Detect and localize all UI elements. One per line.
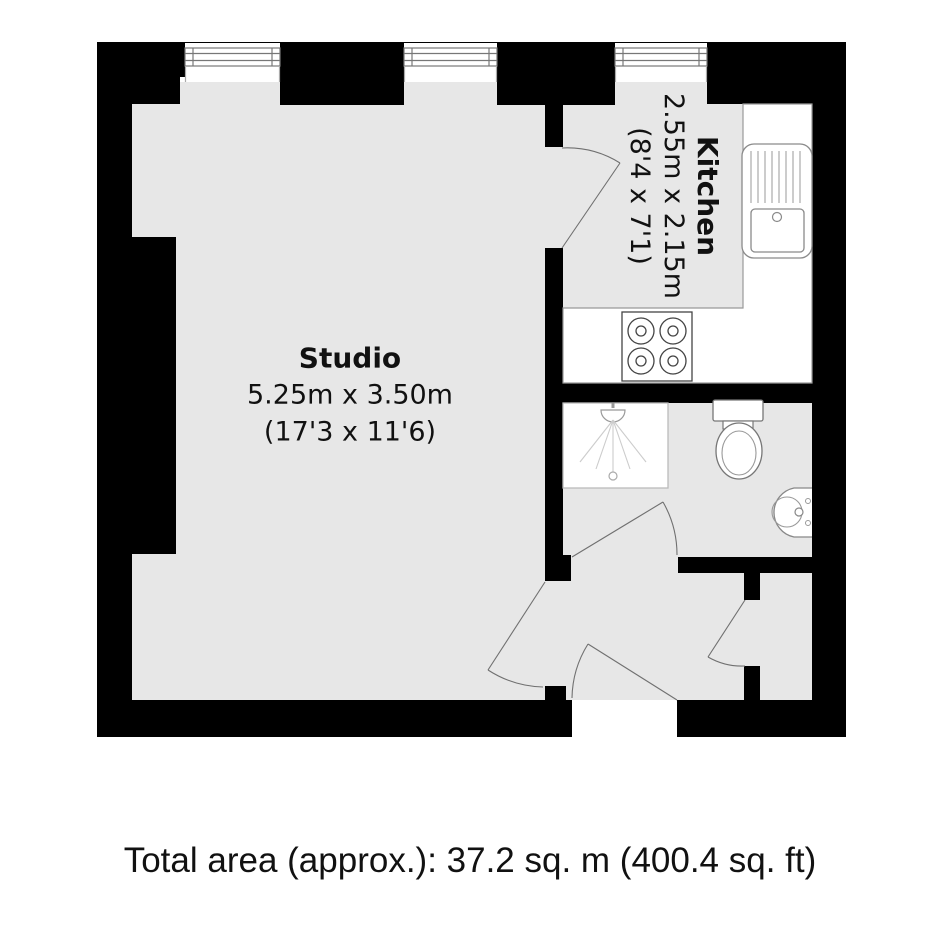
entrance-door-icon <box>572 644 677 700</box>
shower-icon <box>563 403 668 488</box>
studio-dims-metric: 5.25m x 3.50m <box>247 377 453 414</box>
studio-room-label: Studio 5.25m x 3.50m (17'3 x 11'6) <box>247 340 453 451</box>
hob-icon <box>622 312 692 381</box>
bathroom-door-icon <box>572 502 677 557</box>
toilet-icon <box>713 400 763 479</box>
kitchen-room-name: Kitchen <box>690 93 724 299</box>
kitchen-door-icon <box>562 148 620 248</box>
fixtures-layer <box>0 0 940 940</box>
window-icon <box>404 48 497 82</box>
window-icon <box>615 48 707 82</box>
window-icon <box>185 48 280 82</box>
closet-door-icon <box>708 600 745 666</box>
kitchen-dims-imperial: (8'4 x 7'1) <box>622 93 656 299</box>
studio-hall-door-icon <box>488 582 545 687</box>
basin-icon <box>772 488 812 537</box>
total-area-caption: Total area (approx.): 37.2 sq. m (400.4 … <box>124 841 817 881</box>
studio-room-name: Studio <box>247 340 453 377</box>
kitchen-room-label: Kitchen 2.55m x 2.15m (8'4 x 7'1) <box>622 93 724 299</box>
kitchen-sink-icon <box>742 144 812 258</box>
floorplan: Studio 5.25m x 3.50m (17'3 x 11'6) Kitch… <box>0 0 940 940</box>
studio-dims-imperial: (17'3 x 11'6) <box>247 414 453 451</box>
kitchen-dims-metric: 2.55m x 2.15m <box>656 93 690 299</box>
